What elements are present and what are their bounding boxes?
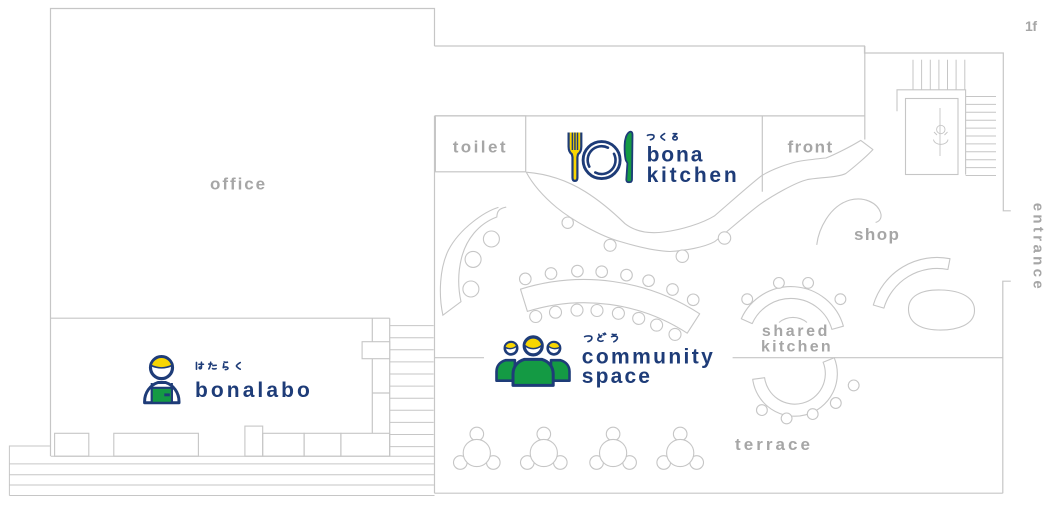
svg-text:front: front (788, 137, 835, 156)
svg-text:entrance: entrance (1030, 203, 1047, 292)
svg-text:toilet: toilet (453, 137, 508, 156)
svg-text:kitchen: kitchen (761, 338, 833, 355)
svg-text:office: office (210, 175, 268, 194)
svg-text:1f: 1f (1025, 18, 1039, 34)
svg-text:terrace: terrace (735, 435, 813, 454)
svg-text:kitchen: kitchen (647, 164, 740, 187)
svg-text:bonalabo: bonalabo (195, 379, 313, 402)
svg-text:shop: shop (854, 225, 901, 244)
svg-text:space: space (582, 365, 653, 388)
